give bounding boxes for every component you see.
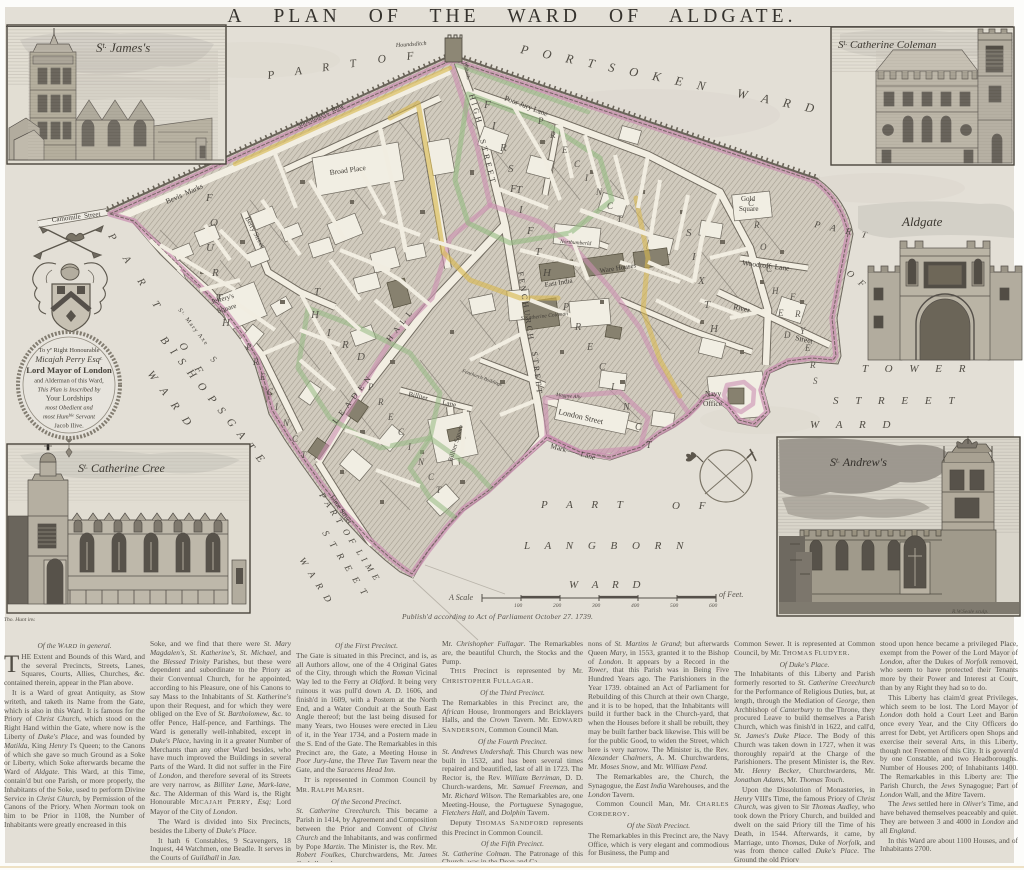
svg-text:E: E bbox=[259, 372, 266, 382]
svg-text:Houndsditch: Houndsditch bbox=[395, 41, 427, 49]
svg-text:D: D bbox=[783, 330, 791, 340]
svg-text:T: T bbox=[314, 286, 321, 298]
svg-text:T: T bbox=[535, 246, 542, 258]
svg-text:H: H bbox=[771, 286, 779, 296]
svg-text:C: C bbox=[428, 472, 435, 482]
svg-text:R: R bbox=[809, 360, 816, 370]
svg-text:200: 200 bbox=[553, 603, 562, 609]
svg-text:T: T bbox=[516, 184, 523, 196]
svg-text:N: N bbox=[595, 187, 603, 197]
svg-text:C: C bbox=[748, 198, 755, 208]
svg-text:Aldgate: Aldgate bbox=[901, 214, 943, 229]
svg-text:O F: O F bbox=[844, 269, 869, 292]
svg-text:R: R bbox=[499, 142, 507, 154]
svg-text:This Plan is Inscribed by: This Plan is Inscribed by bbox=[38, 387, 101, 394]
svg-text:St. Catherine Cree: St. Catherine Cree bbox=[78, 461, 166, 475]
svg-text:R: R bbox=[252, 357, 259, 367]
svg-text:A Scale: A Scale bbox=[448, 593, 474, 602]
svg-text:most Obedient and: most Obedient and bbox=[45, 405, 93, 412]
svg-text:T O W E R: T O W E R bbox=[862, 363, 972, 375]
svg-text:R: R bbox=[549, 130, 556, 140]
svg-text:Publish'd according to Act of: Publish'd according to Act of Parliament… bbox=[401, 612, 593, 621]
svg-text:Jacob Ilive.: Jacob Ilive. bbox=[54, 423, 84, 430]
svg-text:H: H bbox=[542, 267, 552, 279]
svg-text:N: N bbox=[282, 418, 290, 428]
svg-text:U: U bbox=[206, 242, 215, 254]
svg-text:F: F bbox=[483, 99, 491, 111]
svg-text:Office: Office bbox=[703, 399, 723, 408]
svg-text:P: P bbox=[562, 302, 569, 313]
svg-text:W A R D: W A R D bbox=[569, 579, 646, 591]
svg-text:St. Catherine Coleman: St. Catherine Coleman bbox=[838, 39, 937, 51]
svg-text:300: 300 bbox=[591, 603, 601, 609]
svg-text:600: 600 bbox=[709, 603, 718, 609]
svg-text:P A R T: P A R T bbox=[540, 499, 631, 511]
svg-text:S: S bbox=[508, 163, 514, 175]
svg-text:P: P bbox=[245, 342, 252, 352]
svg-text:Micajah Perry Esqr.: Micajah Perry Esqr. bbox=[34, 354, 103, 364]
svg-text:O F: O F bbox=[672, 500, 713, 512]
svg-text:R: R bbox=[211, 267, 219, 279]
svg-text:H: H bbox=[221, 317, 231, 329]
svg-text:C: C bbox=[574, 159, 581, 169]
svg-text:Camomile Street: Camomile Street bbox=[51, 210, 101, 224]
svg-text:T: T bbox=[216, 292, 223, 304]
svg-text:D: D bbox=[356, 351, 365, 363]
svg-text:F: F bbox=[205, 192, 213, 204]
svg-text:R.W.Seale sculp.: R.W.Seale sculp. bbox=[951, 609, 988, 615]
svg-text:of Feet.: of Feet. bbox=[719, 590, 743, 599]
svg-text:C: C bbox=[635, 422, 642, 433]
svg-text:R: R bbox=[574, 322, 581, 333]
svg-text:C: C bbox=[398, 427, 405, 437]
svg-text:Your Lordships: Your Lordships bbox=[46, 394, 93, 403]
svg-text:F: F bbox=[789, 292, 796, 302]
svg-text:Lord Mayor of London: Lord Mayor of London bbox=[26, 365, 112, 375]
svg-text:W A R D: W A R D bbox=[810, 419, 897, 431]
svg-text:S: S bbox=[686, 227, 692, 239]
svg-text:W A R D: W A R D bbox=[296, 556, 334, 607]
svg-text:To ye Right Honourable: To ye Right Honourable bbox=[38, 346, 99, 354]
svg-text:H: H bbox=[310, 309, 320, 321]
svg-text:F: F bbox=[526, 225, 534, 237]
svg-text:and Alderman of this Ward,: and Alderman of this Ward, bbox=[34, 378, 104, 385]
svg-text:C: C bbox=[766, 264, 773, 274]
svg-text:E: E bbox=[387, 412, 394, 422]
svg-text:T: T bbox=[704, 299, 711, 311]
svg-text:R: R bbox=[341, 339, 349, 351]
svg-text:O F: O F bbox=[377, 49, 423, 66]
svg-text:P: P bbox=[537, 116, 544, 126]
svg-text:S T R E E T: S T R E E T bbox=[833, 395, 961, 407]
svg-text:R: R bbox=[377, 397, 384, 407]
svg-text:P: P bbox=[367, 382, 374, 392]
svg-text:N: N bbox=[622, 402, 631, 413]
svg-text:E: E bbox=[586, 342, 593, 353]
svg-text:R: R bbox=[794, 309, 801, 319]
svg-text:E: E bbox=[777, 308, 784, 318]
svg-text:F: F bbox=[509, 183, 517, 195]
svg-text:X: X bbox=[697, 275, 706, 287]
svg-text:400: 400 bbox=[631, 602, 640, 609]
svg-text:C: C bbox=[599, 362, 606, 373]
svg-text:500: 500 bbox=[670, 603, 679, 609]
svg-text:I: I bbox=[610, 382, 615, 393]
svg-text:O: O bbox=[760, 242, 767, 252]
svg-text:N: N bbox=[417, 457, 425, 467]
svg-text:O: O bbox=[210, 217, 218, 229]
svg-text:E: E bbox=[804, 343, 811, 353]
svg-text:100: 100 bbox=[514, 603, 523, 609]
svg-text:C: C bbox=[267, 387, 274, 397]
svg-text:C: C bbox=[292, 434, 299, 444]
svg-text:S: S bbox=[813, 376, 818, 386]
svg-text:R: R bbox=[753, 220, 760, 230]
svg-text:L A N G B O R N: L A N G B O R N bbox=[523, 540, 690, 552]
svg-text:Tho. Hunt inv.: Tho. Hunt inv. bbox=[4, 617, 35, 623]
svg-text:H: H bbox=[709, 323, 719, 335]
svg-text:S: S bbox=[209, 354, 219, 365]
svg-text:C: C bbox=[607, 201, 614, 211]
svg-text:Navy: Navy bbox=[705, 389, 721, 398]
svg-text:E: E bbox=[561, 145, 568, 155]
